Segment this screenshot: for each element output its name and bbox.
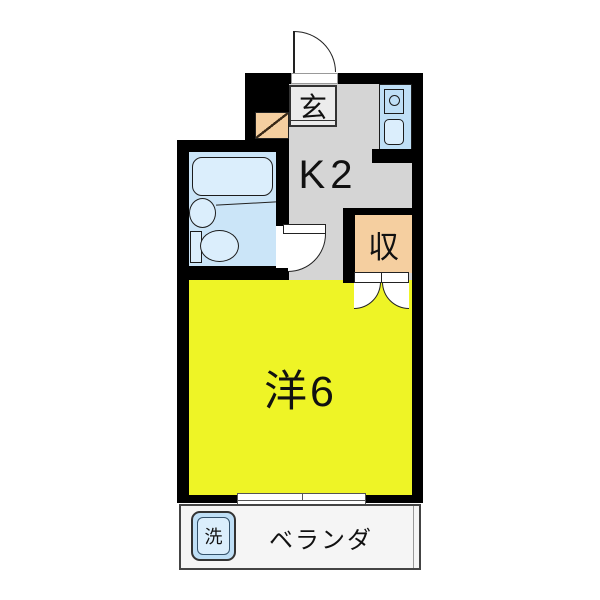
kitchen-label-wrap: K2 xyxy=(291,153,365,197)
entrance-threshold xyxy=(291,73,338,84)
veranda-label-wrap: ベランダ xyxy=(231,506,411,568)
western-room-label: 洋6 xyxy=(264,357,337,419)
closet-top-wall xyxy=(343,208,423,215)
floor-plan: 玄 収 ベランダ 洗 xyxy=(0,0,600,600)
wall-stub xyxy=(372,149,423,163)
western-room-label-wrap: 洋6 xyxy=(189,364,412,412)
kitchen-sink-icon xyxy=(384,119,404,145)
washing-machine-icon: 洗 xyxy=(191,511,236,561)
stove-icon xyxy=(384,89,404,114)
room-entrance: 玄 xyxy=(289,85,337,127)
veranda-label: ベランダ xyxy=(269,520,373,555)
closet-door-leaf-right xyxy=(381,272,409,283)
washing-machine-pan: 洗 xyxy=(197,517,230,555)
bathtub-icon xyxy=(192,157,273,196)
room-veranda: ベランダ 洗 xyxy=(179,504,421,570)
kitchen-label: K2 xyxy=(299,153,358,198)
bathroom-door-leaf xyxy=(283,224,326,234)
entrance-step-line xyxy=(291,120,335,121)
room-closet: 収 xyxy=(355,215,412,273)
closet-label: 収 xyxy=(368,222,399,267)
closet-door-leaf-left xyxy=(354,272,382,283)
laundry-label: 洗 xyxy=(205,523,223,549)
shoe-cabinet-icon xyxy=(255,112,289,139)
kitchen-counter xyxy=(379,84,412,150)
window-center-tick xyxy=(302,494,303,501)
entrance-door-leaf xyxy=(293,31,295,73)
burner-icon xyxy=(389,95,400,106)
veranda-inner-line xyxy=(413,506,414,568)
entrance-door-arc xyxy=(294,31,336,72)
toilet-icon xyxy=(200,230,239,262)
washbasin-icon xyxy=(189,198,216,228)
